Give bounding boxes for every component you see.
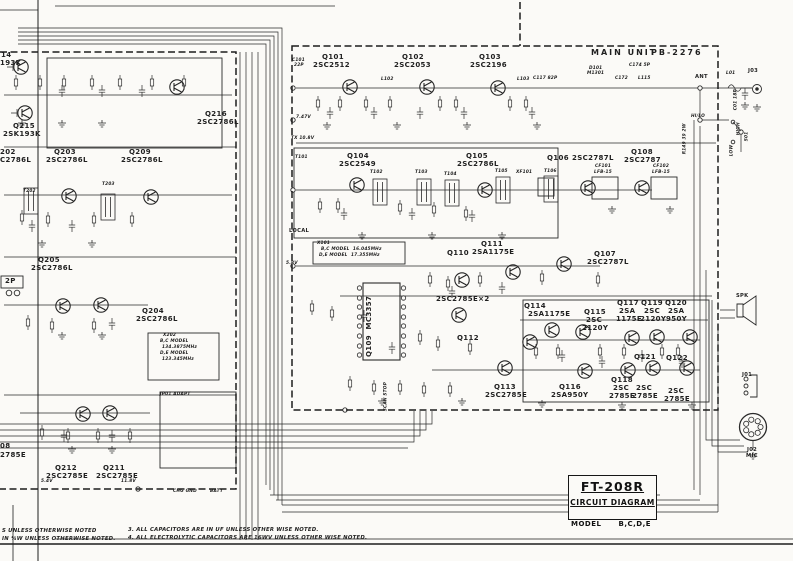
schematic-label: T105 <box>495 170 508 174</box>
schematic-label: 2SC2787L <box>572 155 614 162</box>
schematic-label: 2SC <box>613 385 629 392</box>
terminal-nodes <box>136 86 702 491</box>
schematic-label: Q204 <box>142 308 164 315</box>
unit-borders <box>0 2 718 489</box>
schematic-label: LFB-15 <box>652 171 670 175</box>
schematic-label: SCAN STOP <box>385 382 389 411</box>
schematic-label: 123.345MHz <box>162 358 194 362</box>
schematic-label: D,E MODEL 17.355MHz <box>319 254 380 258</box>
schematic-label: 2SC2786L <box>46 157 88 164</box>
schematic-label: 5.8V <box>286 262 298 266</box>
schematic-label: LFB-15 <box>594 171 612 175</box>
schematic-label: 2SA <box>668 308 684 315</box>
schematic-label: Q121 <box>634 354 656 361</box>
mic-connector <box>740 414 767 441</box>
schematic-label: T101 <box>295 156 308 160</box>
schematic-label: 134.3875MHz <box>162 346 197 350</box>
schematic-label: B,C MODEL 16.045MHz <box>321 248 382 252</box>
schematic-label: 2SC2786L <box>136 316 178 323</box>
schematic-label: 2SA <box>619 308 635 315</box>
schematic-label: Q109 MC3357 <box>366 296 373 357</box>
schematic-page: MAIN UNITPB-2276Q1012SC2512Q1022SC2053Q1… <box>0 0 793 561</box>
schematic-label: HIGH <box>738 122 742 135</box>
subcircuit-boxes <box>1 58 757 468</box>
schematic-label: Q209 <box>129 149 151 156</box>
schematic-label: LOW <box>731 145 735 157</box>
model-value: B,C,D,E <box>618 520 651 528</box>
schematic-label: 2SC2196 <box>470 62 507 69</box>
schematic-label: LOCAL <box>289 229 309 234</box>
title-block: FT-208R CIRCUIT DIAGRAM <box>568 475 657 520</box>
schematic-label: Q107 <box>594 251 616 258</box>
note-left-2: IN ¼W UNLESS OTHERWISE NOTED. <box>2 537 116 542</box>
schematic-label: Q117 <box>617 300 639 307</box>
schematic-label: T106 <box>544 170 557 174</box>
schematic-label: Q102 <box>402 54 424 61</box>
schematic-label: Q108 <box>631 149 653 156</box>
schematic-label: 2SC <box>586 317 602 324</box>
schematic-label: Q205 <box>38 257 60 264</box>
schematic-label: 2SK193K <box>3 131 41 138</box>
schematic-label: Q112 <box>457 335 479 342</box>
schematic-label: 2SC <box>668 388 684 395</box>
schematic-label: J01 <box>742 373 752 378</box>
schematic-label: Q114 <box>524 303 546 310</box>
diagram-title: CIRCUIT DIAGRAM <box>569 498 656 507</box>
schematic-label: 2SC2785E×2 <box>436 296 490 303</box>
schematic-label: Q101 <box>322 54 344 61</box>
schematic-label: Q212 <box>55 465 77 472</box>
schematic-label: X101 <box>317 242 330 246</box>
schematic-label: SPK <box>736 294 748 299</box>
schematic-label: ANT <box>695 75 708 80</box>
schematic-label: T103 <box>415 171 428 175</box>
schematic-label: 2120Y <box>640 316 666 323</box>
schematic-label: 2SC2787L <box>587 259 629 266</box>
schematic-label: XF101 <box>516 171 532 175</box>
schematic-label: 14 <box>1 52 11 59</box>
schematic-label: T102 <box>370 171 383 175</box>
schematic-label: PB-2276 <box>651 49 703 57</box>
schematic-label: L103 <box>517 78 530 82</box>
schematic-label: 2SA1175E <box>472 249 514 256</box>
schematic-label: BATT <box>210 490 223 494</box>
schematic-label: Q106 <box>547 155 569 162</box>
schematic-label: CHG GND <box>173 490 197 494</box>
schematic-label: Q216 <box>205 111 227 118</box>
schematic-label: B,C MODEL <box>160 340 189 344</box>
schematic-label: 2SC2549 <box>339 161 376 168</box>
schematic-label: 7.47V <box>296 116 311 120</box>
schematic-label: C172 <box>615 77 628 81</box>
transistors <box>14 60 697 421</box>
schematic-label: L102 <box>381 78 394 82</box>
schematic-label: T203 <box>102 183 115 187</box>
schematic-label: 2SC2786L <box>31 265 73 272</box>
schematic-label: T104 <box>444 173 457 177</box>
schematic-label: Q111 <box>481 241 503 248</box>
schematic-label: 2SC2512 <box>313 62 350 69</box>
schematic-label: X202 <box>163 334 176 338</box>
schematic-label: Q116 <box>559 384 581 391</box>
schematic-label: 2120Y <box>582 325 608 332</box>
schematic-label: 2SA1175E <box>528 311 570 318</box>
schematic-label: Q115 <box>584 309 606 316</box>
schematic-label: M1301 <box>587 72 604 76</box>
schematic-label: HI/LO <box>691 115 705 119</box>
note-3: 3. ALL CAPACITORS ARE IN UF UNLESS OTHER… <box>128 528 319 533</box>
schematic-label: 2SC2786L <box>121 157 163 164</box>
schematic-label: 22P <box>294 64 304 68</box>
schematic-label: Q215 <box>13 123 35 130</box>
model-row: MODELB,C,D,E <box>571 520 651 528</box>
schematic-label: Q105 <box>466 153 488 160</box>
schematic-label: 950Y <box>666 316 687 323</box>
schematic-label: 2SC <box>636 385 652 392</box>
note-4: 4. ALL ELECTROLYTIC CAPACITORS ARE 16WV … <box>128 536 367 541</box>
schematic-label: 2785E <box>632 393 658 400</box>
schematic-label: Q122 <box>666 355 688 362</box>
schematic-label: L115 <box>638 77 651 81</box>
schematic-label: 2SA950Y <box>551 392 588 399</box>
jacks <box>6 85 761 396</box>
schematic-label: 2SC <box>644 308 660 315</box>
schematic-label: 08 <box>0 443 10 450</box>
schematic-label: Q104 <box>347 153 369 160</box>
schematic-label: TX 10.8V <box>291 137 314 141</box>
schematic-label: 2SC2785E <box>485 392 527 399</box>
schematic-label: Q118 <box>611 377 633 384</box>
schematic-label: C2786L <box>0 157 31 164</box>
schematic-label: 2P <box>5 278 16 285</box>
schematic-label: JP01 ADAPT <box>160 393 191 397</box>
schematic-label: C01 18P <box>735 89 739 110</box>
schematic-label: CF101 <box>595 165 611 169</box>
schematic-label: R149 39 2W <box>684 123 688 154</box>
schematic-label: Q203 <box>54 149 76 156</box>
schematic-label: 5.4V <box>41 480 53 484</box>
schematic-label: Q103 <box>479 54 501 61</box>
schematic-label: Q211 <box>103 465 125 472</box>
schematic-label: 2SC2786L <box>457 161 499 168</box>
schematic-label: 11.8V <box>121 480 136 484</box>
schematic-label: 2785E <box>0 452 26 459</box>
note-left-1: S UNLESS OTHERWISE NOTED <box>2 529 97 534</box>
model-number: FT-208R <box>569 479 656 494</box>
schematic-label: 193K <box>0 60 21 67</box>
schematic-label: D,E MODEL <box>160 352 189 356</box>
model-label: MODEL <box>571 520 601 528</box>
schematic-label: 202 <box>0 149 16 156</box>
schematic-label: S01 <box>746 132 750 142</box>
schematic-label: 1175E <box>616 316 642 323</box>
schematic-label: T202 <box>23 190 36 194</box>
schematic-label: Q113 <box>494 384 516 391</box>
schematic-label: CF102 <box>653 165 669 169</box>
schematic-label: 2785E <box>664 396 690 403</box>
schematic-label: C174 5P <box>629 64 650 68</box>
schematic-label: J03 <box>748 69 758 74</box>
schematic-label: 2SC2786L <box>197 119 239 126</box>
schematic-label: Q119 <box>641 300 663 307</box>
schematic-label: 2SC2787 <box>624 157 661 164</box>
schematic-label: C117 82P <box>533 77 557 81</box>
schematic-label: Q110 <box>447 250 469 257</box>
schematic-label: MIC <box>746 454 758 459</box>
wire-lines <box>0 6 753 540</box>
schematic-label: L01 <box>726 72 735 76</box>
schematic-label: Q120 <box>665 300 687 307</box>
schematic-label: MAIN UNIT <box>591 49 657 57</box>
schematic-label: 2SC2053 <box>394 62 431 69</box>
